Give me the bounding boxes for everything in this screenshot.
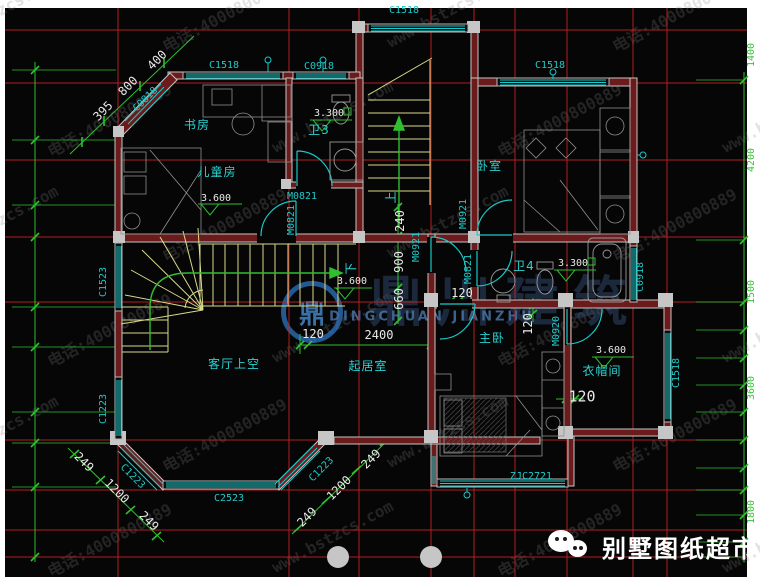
stairs <box>121 58 432 352</box>
footer-brand: 别墅图纸超市 <box>548 528 758 564</box>
wall-openings <box>257 181 570 345</box>
floor-plan-sheet: www.bstzcs.com电话:4000800889www.bstzcs.co… <box>0 0 760 582</box>
footer-brand-text: 别墅图纸超市 <box>602 529 758 564</box>
floorplan-drawing <box>0 0 760 582</box>
furniture <box>121 85 630 456</box>
wechat-icon <box>548 528 592 564</box>
